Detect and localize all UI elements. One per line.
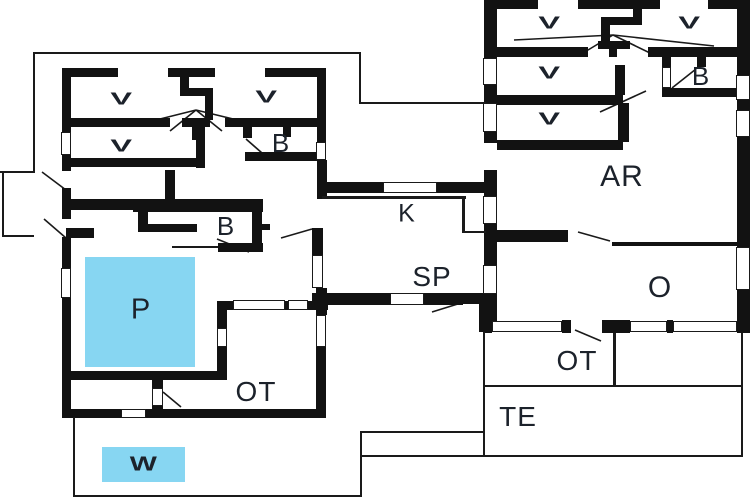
wall-segment (168, 68, 215, 77)
window-frame (736, 247, 750, 290)
outline-line (172, 246, 218, 248)
window-frame (316, 315, 326, 347)
outline-line (741, 333, 743, 457)
room-label-bedroom-3: V (110, 137, 133, 154)
window-frame (312, 255, 323, 288)
room-label-bedroom-6: V (538, 64, 561, 81)
window-frame (662, 67, 671, 88)
wall-segment (737, 320, 750, 333)
room-label-pool: P (131, 296, 151, 325)
wall-segment (62, 298, 71, 410)
window-frame (288, 300, 308, 310)
window-frame (673, 321, 737, 332)
wall-segment (317, 160, 327, 199)
room-label-bedroom-1: V (110, 90, 133, 107)
room-label-bedroom-5: V (678, 14, 701, 31)
outline-line (613, 333, 616, 386)
wall-segment (145, 409, 326, 418)
wall-segment (612, 242, 737, 246)
outline-line (2, 235, 34, 237)
outline-line (2, 171, 4, 237)
window-frame (61, 132, 71, 155)
wall-segment (62, 409, 122, 418)
wall-segment (578, 47, 588, 57)
wall-segment (66, 228, 94, 238)
wall-segment (152, 406, 163, 416)
wall-segment (598, 41, 630, 49)
room-label-bedroom-7: V (538, 110, 561, 127)
wall-segment (578, 0, 660, 9)
window-frame (61, 268, 71, 298)
wall-segment (484, 132, 497, 143)
wall-segment (327, 182, 383, 193)
wall-segment (316, 347, 326, 410)
window-frame (630, 321, 667, 332)
door-swing-line (44, 219, 66, 238)
window-frame (121, 409, 146, 418)
wall-segment (708, 0, 750, 9)
wall-segment (601, 17, 642, 25)
wall-segment (484, 0, 538, 9)
window-frame (736, 75, 750, 100)
room-label-dining: SP (412, 263, 451, 291)
floor-plan: V V V V V V V B B B K SP AR O OT OT TE P… (0, 0, 750, 500)
wall-segment (648, 47, 737, 57)
door-swing-line (281, 229, 312, 238)
wall-segment (71, 158, 204, 167)
wall-segment (205, 96, 213, 120)
wall-segment (497, 47, 578, 57)
room-label-ar: AR (600, 162, 644, 192)
outline-line (462, 196, 465, 233)
door-swing-line (163, 392, 181, 407)
wall-segment (737, 137, 750, 247)
wall-segment (424, 293, 463, 305)
wall-segment (218, 243, 263, 252)
outline-line (462, 231, 486, 233)
outline-line (0, 171, 35, 173)
room-label-living: O (648, 273, 672, 303)
outline-line (359, 102, 486, 104)
room-label-terrace-ot-right: OT (557, 347, 598, 375)
wall-segment (182, 118, 210, 127)
wall-segment (662, 57, 671, 67)
wall-segment (312, 228, 323, 255)
wall-segment (62, 155, 71, 171)
wall-segment (225, 118, 326, 127)
room-label-bath-3: B (692, 63, 710, 89)
room-label-terrace-te: TE (499, 403, 537, 431)
wall-segment (497, 95, 623, 105)
wall-segment (601, 25, 610, 41)
room-label-whirlpool: W (130, 454, 158, 475)
wall-segment (484, 9, 497, 58)
door-swing-line (514, 35, 613, 40)
outline-line (359, 52, 361, 104)
wall-segment (133, 202, 263, 212)
wall-segment (615, 65, 625, 95)
wall-segment (217, 301, 233, 310)
wall-segment (262, 224, 270, 230)
wall-segment (618, 103, 629, 142)
wall-segment (484, 85, 497, 103)
wall-segment (165, 170, 175, 202)
wall-segment (138, 224, 197, 232)
wall-segment (737, 290, 750, 320)
door-swing-line (246, 139, 262, 153)
wall-segment (71, 118, 170, 127)
wall-segment (217, 347, 227, 373)
door-swing-line (575, 330, 601, 341)
outline-line (73, 417, 75, 497)
window-frame (152, 388, 163, 406)
outline-line (73, 495, 362, 497)
wall-segment (609, 49, 617, 57)
wall-segment (312, 293, 390, 305)
wall-segment (62, 237, 71, 268)
window-frame (736, 110, 750, 137)
window-frame (383, 182, 437, 193)
outline-line (483, 332, 485, 457)
wall-segment (484, 320, 492, 333)
room-label-bath-1: B (272, 130, 290, 156)
wall-segment (437, 182, 484, 193)
wall-segment (252, 210, 262, 243)
window-frame (483, 265, 497, 294)
room-label-kitchen: K (398, 202, 416, 227)
window-frame (483, 58, 497, 85)
wall-segment (737, 100, 750, 110)
wall-segment (562, 320, 571, 333)
wall-segment (602, 320, 630, 333)
window-frame (233, 300, 285, 310)
window-frame (316, 142, 326, 160)
outline-line (360, 455, 743, 457)
room-label-terrace-ot-left: OT (236, 378, 277, 406)
wall-segment (243, 127, 252, 138)
window-frame (217, 328, 227, 347)
wall-segment (484, 170, 497, 196)
outline-line (33, 52, 35, 173)
wall-segment (497, 140, 623, 150)
room-label-bedroom-2: V (255, 88, 278, 105)
door-swing-line (578, 232, 610, 241)
wall-segment (217, 310, 227, 328)
wall-segment (62, 188, 71, 219)
window-frame (483, 103, 497, 132)
outline-line (33, 52, 361, 54)
room-label-bedroom-4: V (538, 14, 561, 31)
outline-line (362, 431, 485, 433)
room-label-bath-2: B (217, 213, 235, 239)
wall-segment (152, 378, 163, 388)
wall-segment (180, 88, 213, 96)
outline-line (322, 196, 466, 199)
wall-segment (737, 9, 750, 75)
outline-line (360, 431, 362, 497)
window-frame (390, 293, 424, 305)
window-frame (483, 196, 497, 224)
window-frame (492, 321, 562, 332)
wall-segment (317, 68, 326, 142)
wall-segment (62, 68, 71, 132)
wall-segment (484, 230, 568, 242)
